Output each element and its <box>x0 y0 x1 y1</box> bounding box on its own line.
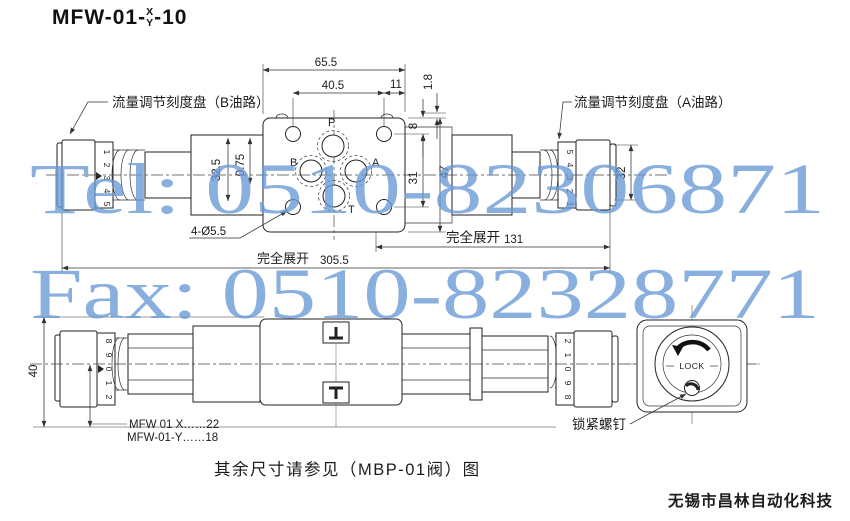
model-code-y: Y <box>146 18 154 29</box>
model-code-title: MFW-01-XY-10 <box>52 6 187 30</box>
svg-text:9: 9 <box>104 353 114 358</box>
svg-text:8: 8 <box>563 395 573 400</box>
dim-step: 1.8 <box>423 74 435 90</box>
model-code-suffix: -10 <box>154 6 187 30</box>
valve-drawing-svg: P B A T 1 2 3 4 5 5 4 3 2 1 <box>0 0 850 521</box>
dim-sv-height: 40 <box>28 365 40 378</box>
dim-top-to-hole: 8 <box>408 123 420 129</box>
svg-text:0: 0 <box>104 367 114 372</box>
sv-bottom-port-symbol <box>323 382 349 403</box>
watermark-fax: Fax: 0510-82328771 <box>30 254 820 334</box>
drawing-sheet: P B A T 1 2 3 4 5 5 4 3 2 1 <box>0 0 850 521</box>
label-dial-a: 流量调节刻度盘（A油路） <box>574 94 732 110</box>
dim-extended-knob: 131 <box>504 234 523 246</box>
model-code-fraction: XY <box>146 7 154 28</box>
model-code-prefix: MFW-01- <box>52 6 146 30</box>
lock-screw-label: 锁紧螺钉 <box>572 417 626 432</box>
svg-text:2: 2 <box>563 339 573 344</box>
port-label-p: P <box>328 117 335 129</box>
company-name: 无锡市昌林自动化科技 <box>667 491 833 510</box>
dim-total-width: 65.5 <box>315 57 337 69</box>
variant-y-label: MFW-01-Y……18 <box>127 432 218 444</box>
extend-label-right: 完全展开 <box>446 229 500 245</box>
sv-left-knurled-knob <box>60 331 97 407</box>
dim-edge-offset: 11 <box>390 79 402 91</box>
sv-right-endcap <box>612 336 618 402</box>
svg-text:9: 9 <box>563 381 573 386</box>
svg-text:0: 0 <box>563 367 573 372</box>
sv-right-knurled-knob <box>574 331 612 407</box>
body-boss-left <box>276 114 288 118</box>
svg-text:1: 1 <box>563 353 573 358</box>
caption: 其余尺寸请参见（MBP-01阀）图 <box>214 460 481 479</box>
variant-x-label: MFW 01 X……22 <box>129 419 219 431</box>
lock-text: LOCK <box>679 361 704 371</box>
leader-dial-b <box>70 102 108 134</box>
dim-bolt-spacing: 40.5 <box>322 80 344 92</box>
svg-text:8: 8 <box>104 339 114 344</box>
leader-dial-a <box>559 102 572 139</box>
label-dial-b: 流量调节刻度盘（B油路） <box>112 94 270 110</box>
svg-text:2: 2 <box>104 395 114 400</box>
body-boss-right <box>381 114 393 118</box>
watermark-tel: Tel: 0510-82306871 <box>30 149 825 229</box>
svg-text:1: 1 <box>104 381 114 386</box>
